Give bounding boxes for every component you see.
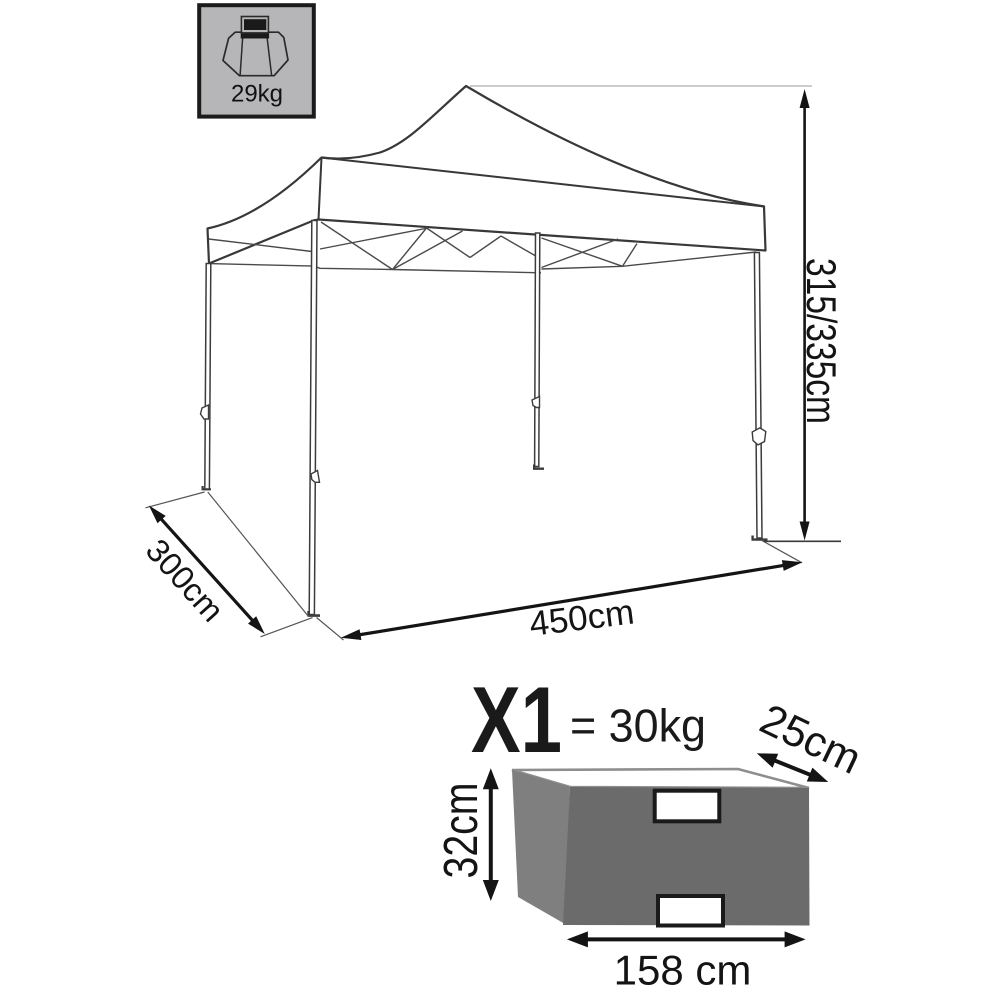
svg-text:32cm: 32cm: [435, 783, 488, 879]
svg-text:= 30kg: = 30kg: [570, 700, 706, 752]
svg-text:315/335cm: 315/335cm: [798, 258, 845, 424]
svg-text:158 cm: 158 cm: [614, 947, 752, 994]
svg-text:X1: X1: [471, 667, 562, 772]
svg-text:29kg: 29kg: [231, 81, 283, 108]
